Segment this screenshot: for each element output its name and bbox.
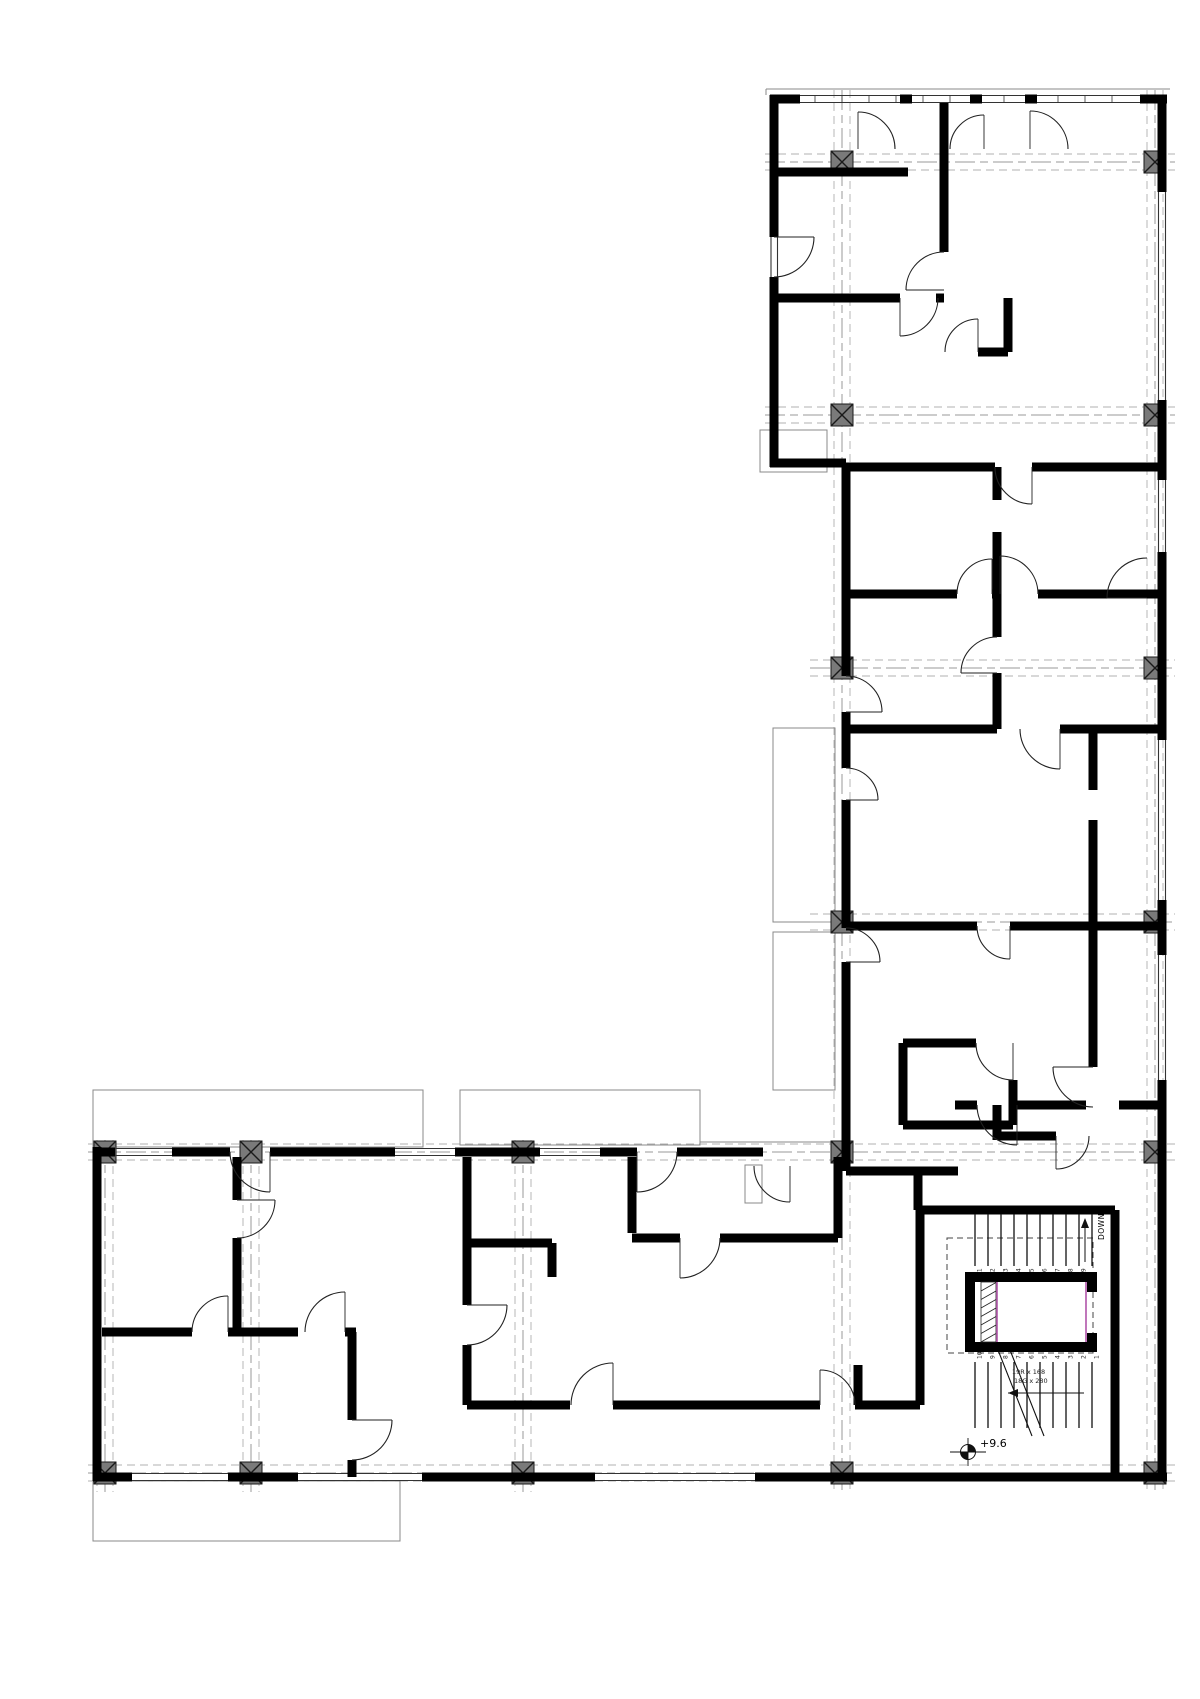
stair-spec-risers: 19R x 168 <box>1012 1368 1045 1376</box>
door-swing <box>352 1420 392 1460</box>
stair-spec-goings: 18G x 280 <box>1014 1377 1048 1385</box>
hatch-line <box>981 1334 996 1343</box>
tread-number: 5 <box>1042 1355 1049 1359</box>
door-swing <box>820 1370 855 1405</box>
terrace-outline <box>93 1481 400 1541</box>
tread-number: 3 <box>1068 1355 1075 1359</box>
tread-number: 4 <box>1055 1355 1062 1359</box>
column-marker <box>831 404 853 426</box>
column-marker <box>240 1141 262 1163</box>
door-swing <box>950 115 984 149</box>
tread-number: 6 <box>1029 1355 1036 1359</box>
level-marker-quadrant <box>968 1445 976 1453</box>
door-swing <box>1000 556 1038 594</box>
elevator-shaft <box>965 1272 1097 1352</box>
terrace-outline <box>93 1090 423 1147</box>
door-swing <box>467 1305 507 1345</box>
door-swing <box>846 676 882 712</box>
door-swing <box>1030 111 1068 149</box>
door-swing <box>1020 729 1060 769</box>
down-arrowhead-icon <box>1081 1218 1089 1228</box>
door-swing <box>571 1363 613 1405</box>
door-swing <box>754 1166 790 1202</box>
door-swing <box>858 112 895 149</box>
window-mullions <box>815 95 1112 103</box>
interior-walls-stair-zone <box>467 1171 1115 1477</box>
floor-plan-sheet: 11121314151617181910987654321 DOWN 19R x… <box>0 0 1200 1699</box>
level-marker-quadrant <box>961 1452 969 1460</box>
hatch-line <box>981 1291 996 1300</box>
interior-walls-lower-wing <box>102 1148 846 1477</box>
interior-walls-mid-block <box>846 467 1162 1140</box>
stair-treads: 11121314151617181910987654321 <box>975 1214 1101 1428</box>
tread-number: 8 <box>1003 1355 1010 1359</box>
tread-number: 1 <box>1094 1355 1101 1359</box>
hatch-line <box>981 1317 996 1326</box>
walk-line-arrowhead-icon <box>1008 1389 1018 1397</box>
door-swing <box>192 1296 228 1332</box>
tread-number: 10 <box>977 1351 984 1359</box>
elevator-guide-lines <box>997 1282 1086 1342</box>
door-swing <box>774 237 814 277</box>
shaft-hatch <box>981 1282 996 1342</box>
door-swing <box>957 559 992 594</box>
tread-number: 7 <box>1016 1355 1023 1359</box>
hatch-line <box>981 1283 996 1292</box>
level-marker: +9.6 <box>950 1437 1007 1466</box>
tread-number: 9 <box>990 1355 997 1359</box>
door-swing <box>906 252 944 290</box>
floor-plan-drawing: 11121314151617181910987654321 DOWN 19R x… <box>0 0 1200 1699</box>
tread-number: 2 <box>1081 1355 1088 1359</box>
level-value: +9.6 <box>980 1437 1007 1450</box>
door-swing <box>976 1043 1013 1080</box>
door-swing <box>846 768 878 800</box>
hatch-line <box>981 1325 996 1334</box>
balcony-outline <box>773 932 835 1090</box>
down-label: DOWN <box>1097 1213 1106 1240</box>
terrace-outline <box>460 1090 700 1145</box>
wall-recess <box>745 1165 762 1203</box>
hatch-line <box>981 1308 996 1317</box>
hatch-line <box>981 1300 996 1309</box>
door-swing <box>945 319 978 352</box>
balcony-outline <box>773 728 835 922</box>
door-swing <box>1056 1136 1089 1169</box>
door-swing <box>637 1152 677 1192</box>
door-swing <box>680 1238 720 1278</box>
door-swing <box>900 298 938 336</box>
door-swing <box>977 926 1010 959</box>
door-swing <box>305 1292 345 1332</box>
